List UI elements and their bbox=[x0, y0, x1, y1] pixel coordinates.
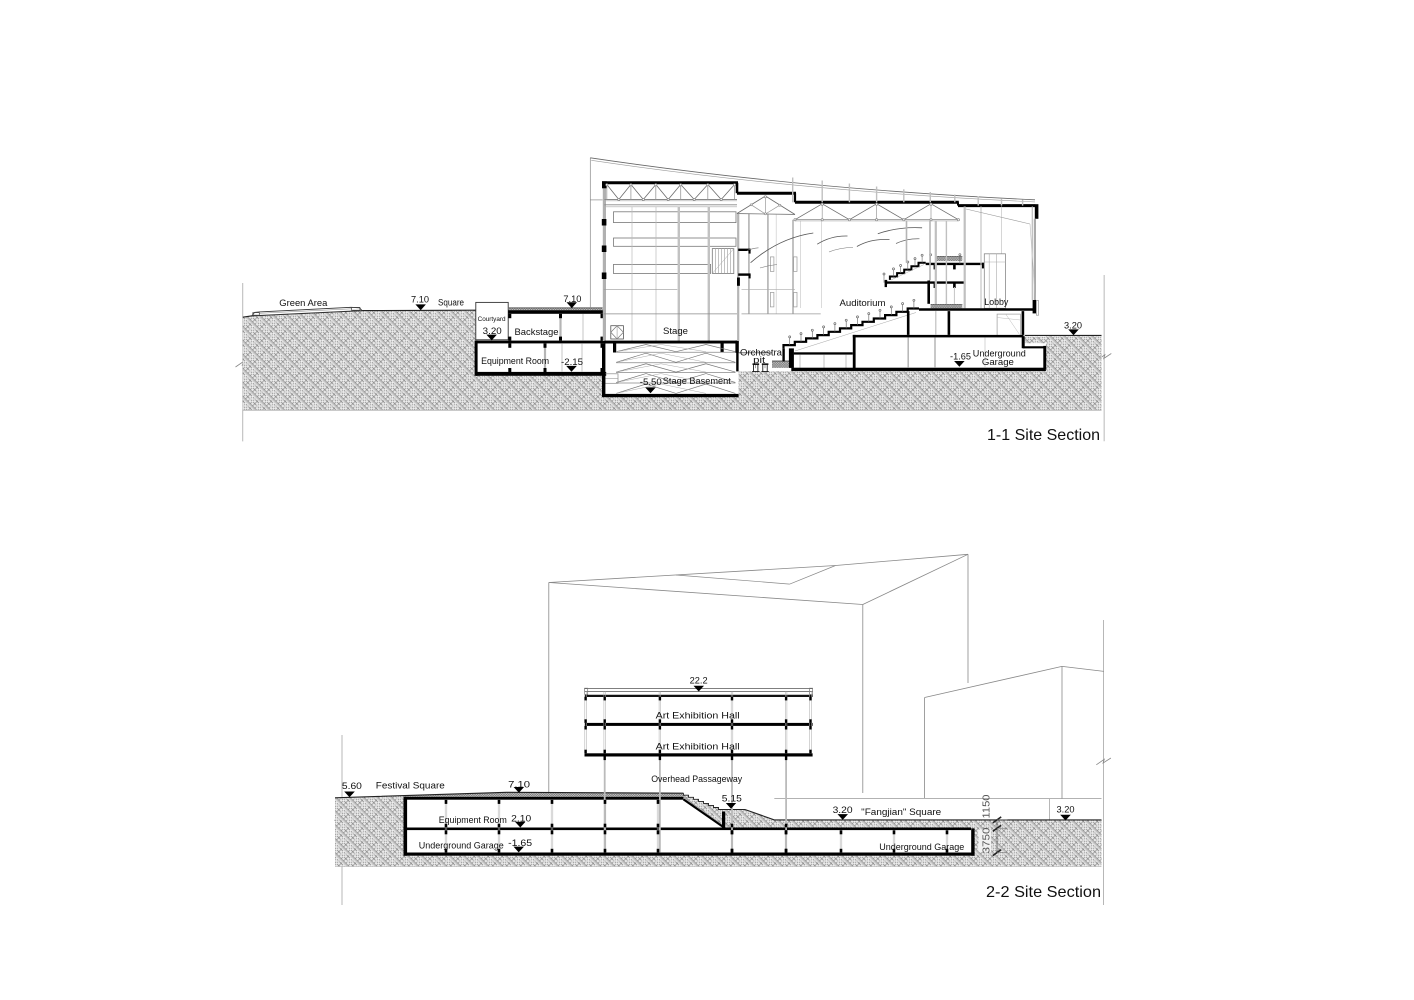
svg-text:5.60: 5.60 bbox=[342, 781, 362, 791]
svg-text:5.15: 5.15 bbox=[722, 794, 742, 804]
svg-text:"Fangjian" Square: "Fangjian" Square bbox=[861, 807, 941, 817]
svg-text:1-1 Site Section: 1-1 Site Section bbox=[987, 427, 1100, 444]
svg-text:3750: 3750 bbox=[982, 827, 993, 854]
svg-text:1150: 1150 bbox=[982, 794, 993, 818]
svg-text:-2.15: -2.15 bbox=[561, 357, 583, 367]
svg-text:Courtyard: Courtyard bbox=[478, 316, 506, 323]
svg-text:Art Exhibition Hall: Art Exhibition Hall bbox=[656, 741, 740, 751]
svg-text:-1.65: -1.65 bbox=[950, 351, 971, 361]
svg-text:Underground Garage: Underground Garage bbox=[419, 840, 504, 850]
svg-text:2-2 Site Section: 2-2 Site Section bbox=[986, 884, 1101, 901]
svg-text:Lobby: Lobby bbox=[984, 297, 1008, 307]
svg-text:Stage Basement: Stage Basement bbox=[663, 376, 732, 386]
svg-text:-5.50: -5.50 bbox=[640, 377, 662, 387]
svg-text:3.20: 3.20 bbox=[1064, 320, 1082, 330]
svg-text:7.10: 7.10 bbox=[411, 294, 429, 304]
svg-text:Stage: Stage bbox=[663, 326, 688, 336]
svg-text:3.20: 3.20 bbox=[1057, 805, 1075, 815]
svg-text:Auditorium: Auditorium bbox=[840, 298, 886, 308]
svg-text:Square: Square bbox=[438, 297, 464, 307]
svg-text:Equipment Room: Equipment Room bbox=[481, 356, 549, 366]
svg-text:Garage: Garage bbox=[982, 357, 1014, 367]
svg-text:Backstage: Backstage bbox=[515, 327, 559, 337]
svg-text:Art Exhibition Hall: Art Exhibition Hall bbox=[656, 711, 740, 721]
svg-text:3.20: 3.20 bbox=[833, 805, 853, 815]
svg-text:22.2: 22.2 bbox=[690, 676, 708, 686]
svg-text:Green Area: Green Area bbox=[279, 298, 327, 308]
svg-text:Equipment Room: Equipment Room bbox=[439, 815, 507, 825]
svg-text:pit: pit bbox=[753, 355, 766, 365]
svg-text:Festival Square: Festival Square bbox=[376, 781, 445, 791]
svg-text:Underground Garage: Underground Garage bbox=[879, 842, 964, 852]
svg-text:Overhead Passageway: Overhead Passageway bbox=[651, 774, 742, 784]
